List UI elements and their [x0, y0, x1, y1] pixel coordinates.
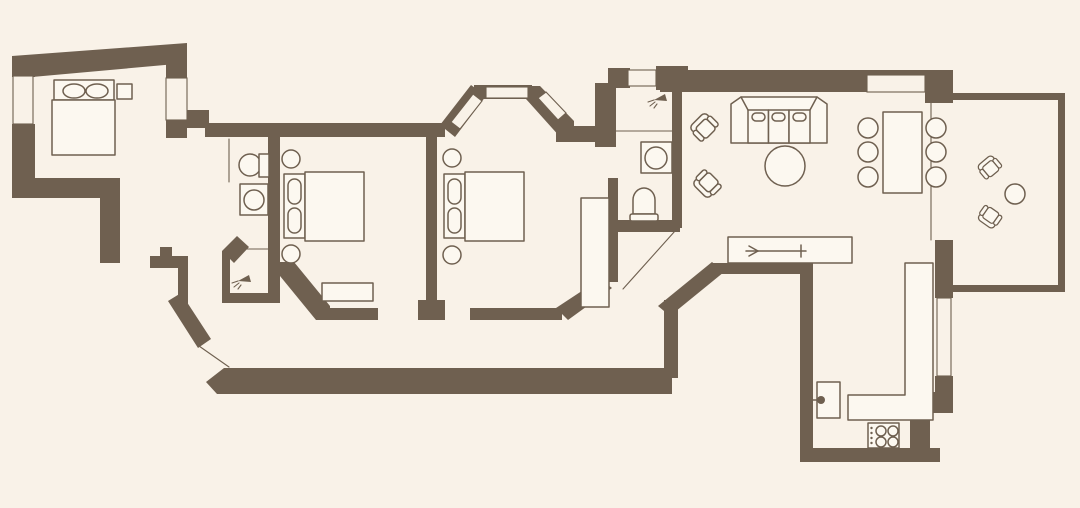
shower-head-icon [648, 94, 667, 108]
dining-table-icon [883, 112, 922, 193]
kitchen-sink-icon [813, 382, 840, 418]
wall-segment [150, 256, 188, 268]
toilet-icon [259, 154, 269, 177]
wall-segment [316, 308, 378, 320]
shower-room [232, 275, 251, 289]
pillow-icon [86, 84, 108, 98]
nightstand-icon [117, 84, 132, 99]
wall-segment [672, 68, 682, 228]
wall-segment [935, 240, 953, 298]
window-icon [867, 75, 925, 92]
pillow-icon [448, 179, 461, 204]
wall-segment [222, 293, 280, 303]
wall-segment [12, 56, 35, 77]
window-icon [199, 346, 229, 367]
double-bed-icon [52, 100, 115, 155]
coffee-table-icon [765, 146, 805, 186]
wall-segment [556, 126, 610, 142]
toilet-icon [633, 188, 655, 214]
wall-segment [206, 368, 672, 394]
wall-segment [935, 376, 953, 394]
floor-plan [0, 0, 1080, 508]
bench-icon [322, 283, 373, 301]
bathroom-1 [239, 154, 269, 215]
wardrobe-icon [581, 198, 609, 307]
wall-segment [12, 43, 187, 77]
wall-segment [470, 308, 562, 320]
wall-segment [426, 137, 437, 308]
sink-icon [645, 147, 667, 169]
living-dining-room [688, 97, 946, 263]
door-leaf [623, 231, 675, 289]
sofa-icon [731, 97, 827, 143]
counter-icon [848, 263, 933, 420]
round-nightstand-icon [282, 150, 300, 168]
wall-segment [12, 178, 120, 198]
dining-chair-icon [858, 142, 878, 162]
side-table-icon [1005, 184, 1025, 204]
patio-chair-icon [976, 154, 1003, 181]
toilet-icon [630, 214, 658, 221]
bathroom-2 [616, 94, 672, 221]
pillow-icon [288, 208, 301, 233]
window-icon [628, 70, 656, 86]
wall-segment [168, 293, 211, 348]
round-nightstand-icon [443, 149, 461, 167]
round-nightstand-icon [282, 245, 300, 263]
toilet-icon [239, 154, 261, 176]
stove-icon [868, 423, 899, 448]
wall-segment [800, 274, 813, 454]
dining-chair-icon [926, 167, 946, 187]
dining-chair-icon [858, 167, 878, 187]
round-nightstand-icon [443, 246, 461, 264]
window-icon [166, 78, 187, 120]
double-bed-icon [305, 172, 364, 241]
balcony-wall [953, 285, 1065, 292]
pillow-icon [288, 179, 301, 204]
dining-chair-icon [926, 118, 946, 138]
bedroom-1 [52, 80, 132, 155]
wall-segment [418, 300, 445, 320]
kitchen [813, 263, 933, 448]
double-bed-icon [465, 172, 524, 241]
armchair-icon [691, 168, 723, 200]
wall-segment [160, 247, 172, 257]
wall-segment [618, 220, 680, 232]
armchair-icon [688, 111, 720, 143]
wall-segment [268, 137, 280, 295]
bedroom-3 [443, 149, 609, 307]
window-icon [13, 76, 33, 124]
dining-chair-icon [926, 142, 946, 162]
shower-head-icon [232, 275, 251, 289]
balcony-wall [1058, 93, 1065, 292]
wall-segment [925, 92, 953, 103]
pillow-icon [63, 84, 85, 98]
window-icon [486, 87, 528, 98]
bar-counter-icon [728, 237, 852, 263]
dining-chair-icon [858, 118, 878, 138]
balcony-wall [953, 93, 1065, 100]
wall-segment [713, 263, 813, 274]
washing-machine-icon [244, 190, 264, 210]
wall-segment [205, 123, 445, 137]
pillow-icon [448, 208, 461, 233]
wall-segment [166, 120, 187, 138]
balcony [976, 154, 1025, 230]
wall-segment [100, 198, 120, 263]
window-icon [937, 298, 951, 376]
patio-chair-icon [976, 204, 1003, 230]
